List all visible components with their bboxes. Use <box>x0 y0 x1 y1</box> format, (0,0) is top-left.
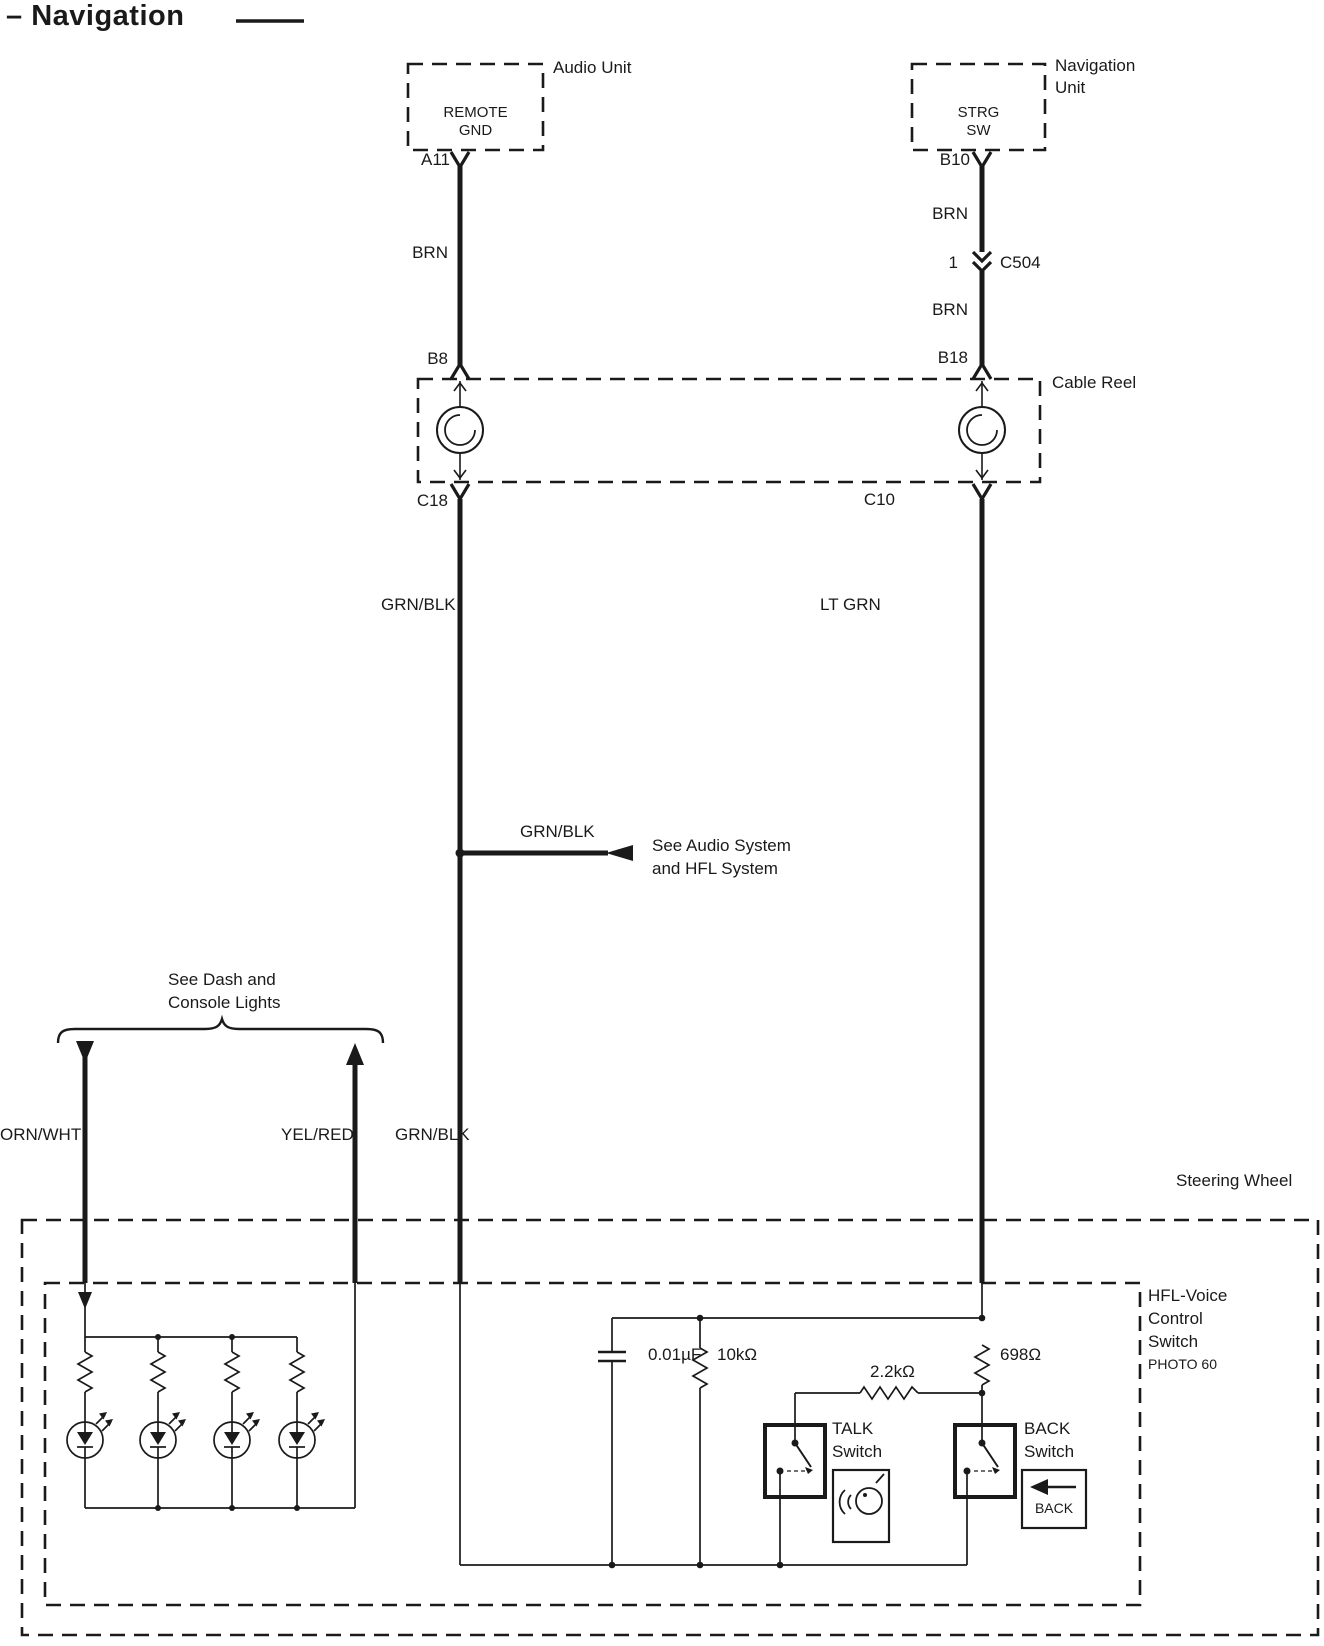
diode-arrow-icon <box>78 1292 92 1309</box>
back-button-text: BACK <box>1022 1500 1086 1516</box>
connector-cavity: 1 <box>928 253 958 273</box>
talk-switch-label-1: TALK <box>832 1419 873 1439</box>
navigation-unit-label-1: Navigation <box>1055 56 1135 76</box>
back-switch-symbol <box>964 1440 1001 1475</box>
steering-wheel-label: Steering Wheel <box>1176 1171 1292 1191</box>
wire-label-grnblk-upper: GRN/BLK <box>381 595 447 615</box>
arrow-down-icon <box>76 1041 94 1063</box>
pin-b10: B10 <box>918 150 970 170</box>
back-switch-label-1: BACK <box>1024 1419 1070 1439</box>
led-branch-4 <box>279 1337 325 1508</box>
capacitor-value: 0.01µF <box>648 1345 701 1365</box>
led-branch-2 <box>140 1337 186 1508</box>
back-button-face-box <box>1022 1470 1086 1528</box>
resistor-2k2-value: 2.2kΩ <box>870 1362 915 1382</box>
audio-terminal-label-2: GND <box>408 122 543 140</box>
title-dash: – <box>6 0 23 32</box>
pin-c18: C18 <box>396 491 448 511</box>
terminal-connectors <box>451 152 991 499</box>
wiring-diagram-page: – Navigation Audio Unit REMOTE GND A11 N… <box>0 0 1324 1646</box>
wire-label-yelred: YEL/RED <box>281 1125 354 1145</box>
wire-label-ornwht: ORN/WHT <box>0 1125 74 1145</box>
connector-c504-label: C504 <box>1000 253 1041 273</box>
see-dash-lights-note-2: Console Lights <box>168 993 280 1013</box>
led-branch-1 <box>67 1337 113 1508</box>
pin-c10: C10 <box>843 490 895 510</box>
nav-terminal-label-1: STRG <box>912 104 1045 122</box>
hfl-photo-ref: PHOTO 60 <box>1148 1356 1217 1372</box>
see-audio-system-note-2: and HFL System <box>652 859 778 879</box>
connector-b8-icon <box>451 364 469 379</box>
arrow-up-icon <box>346 1043 364 1065</box>
pin-a11: A11 <box>398 150 450 170</box>
cable-reel-coil-right-icon <box>959 407 1005 453</box>
audio-unit-label: Audio Unit <box>553 58 631 78</box>
connector-c504-chevron-icon <box>973 252 991 261</box>
cable-reel-coil-left-icon <box>437 407 483 453</box>
talk-switch-symbol <box>777 1440 814 1475</box>
connector-b18-icon <box>973 364 991 379</box>
junction-dot <box>456 849 465 858</box>
see-audio-system-note-1: See Audio System <box>652 836 791 856</box>
connector-c10-icon <box>973 484 991 499</box>
wire-label-brn-lower-right: BRN <box>918 300 968 320</box>
talk-switch-label-2: Switch <box>832 1442 882 1462</box>
led-branch-3 <box>214 1337 260 1508</box>
branch-arrow-icon <box>606 845 633 861</box>
hfl-voice-control-switch-box <box>45 1283 1140 1605</box>
cable-reel-label: Cable Reel <box>1052 373 1136 393</box>
nav-terminal-label-2: SW <box>912 122 1045 140</box>
audio-terminal-label-1: REMOTE <box>408 104 543 122</box>
title-text: Navigation <box>31 0 184 32</box>
page-title: – Navigation <box>6 0 184 33</box>
connector-b10-icon <box>973 152 991 167</box>
cable-reel-box <box>418 379 1040 482</box>
see-dash-lights-note-1: See Dash and <box>168 970 276 990</box>
navigation-unit-label-2: Unit <box>1055 78 1085 98</box>
connector-c504-chevron-icon <box>973 262 991 271</box>
hfl-label-3: Switch <box>1148 1332 1198 1352</box>
connector-a11-icon <box>451 152 469 167</box>
pin-b18: B18 <box>916 348 968 368</box>
capacitor-icon <box>598 1352 626 1361</box>
back-switch-box <box>955 1425 1015 1497</box>
brace-icon <box>58 1019 383 1043</box>
resistor-2k2-icon <box>860 1387 918 1399</box>
wires-thick <box>85 166 982 1283</box>
resistor-698-icon <box>975 1345 989 1385</box>
talk-icon <box>840 1474 884 1514</box>
resistor-698-value: 698Ω <box>1000 1345 1041 1365</box>
wire-label-ltgrn: LT GRN <box>820 595 881 615</box>
wire-label-brn-upper-right: BRN <box>918 204 968 224</box>
pin-b8: B8 <box>398 349 448 369</box>
wire-label-grnblk-branch: GRN/BLK <box>520 822 595 842</box>
hfl-label-1: HFL-Voice <box>1148 1286 1227 1306</box>
back-arrow-icon <box>1030 1479 1076 1495</box>
back-switch-label-2: Switch <box>1024 1442 1074 1462</box>
wire-label-grnblk-lower: GRN/BLK <box>395 1125 470 1145</box>
resistor-10k-value: 10kΩ <box>717 1345 757 1365</box>
connector-c18-icon <box>451 484 469 499</box>
diagram-line-art <box>0 0 1324 1646</box>
wire-label-brn-left: BRN <box>398 243 448 263</box>
hfl-label-2: Control <box>1148 1309 1203 1329</box>
cable-reel-internals <box>454 381 988 480</box>
